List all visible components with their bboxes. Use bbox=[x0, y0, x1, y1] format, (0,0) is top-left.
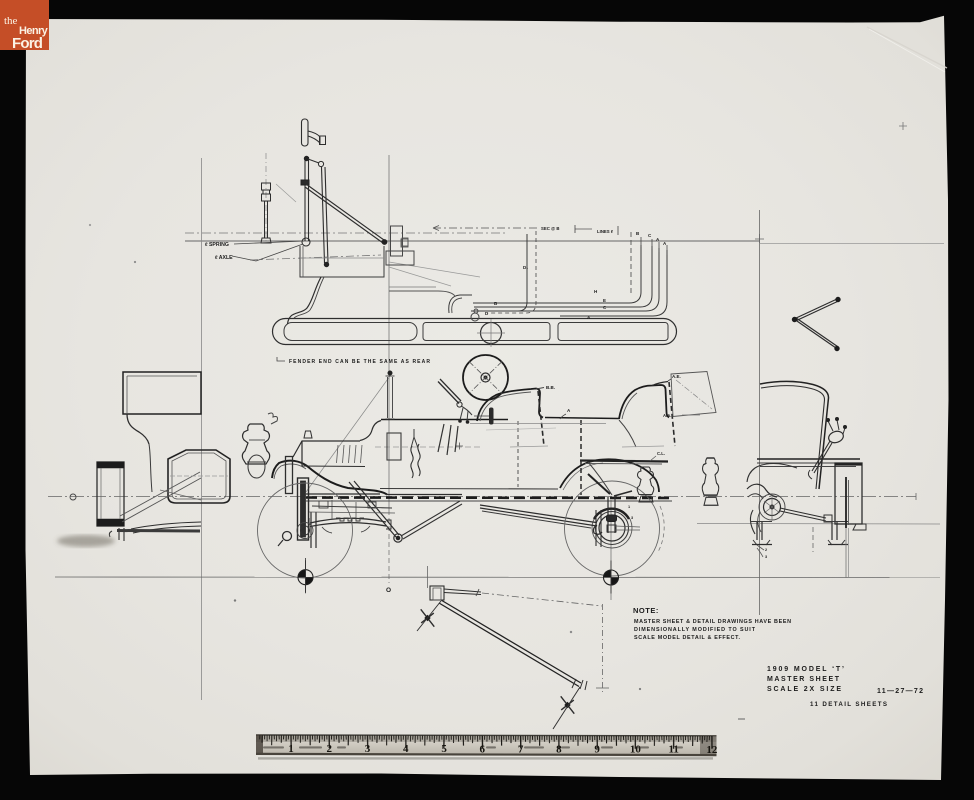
svg-text:D₁: D₁ bbox=[523, 265, 528, 270]
svg-text:FENDER END CAN BE THE SAME AS: FENDER END CAN BE THE SAME AS REAR bbox=[289, 359, 430, 365]
svg-text:E: E bbox=[603, 298, 606, 303]
svg-text:1: 1 bbox=[628, 505, 630, 509]
svg-text:H: H bbox=[594, 289, 597, 294]
svg-text:SEC @ B: SEC @ B bbox=[541, 226, 560, 231]
svg-text:LINES ℓ: LINES ℓ bbox=[597, 229, 613, 234]
svg-text:MASTER SHEET: MASTER SHEET bbox=[767, 676, 840, 683]
svg-text:ℓ AXLE: ℓ AXLE bbox=[214, 255, 233, 261]
svg-text:ℓ SPRING: ℓ SPRING bbox=[204, 242, 229, 248]
svg-text:MASTER SHEET & DETAIL DRAWINGS: MASTER SHEET & DETAIL DRAWINGS HAVE BEEN bbox=[634, 619, 791, 625]
svg-text:DIMENSIONALLY MODIFIED TO S: DIMENSIONALLY MODIFIED TO SUIT bbox=[634, 627, 756, 633]
svg-text:Ford: Ford bbox=[12, 35, 43, 52]
svg-text:3: 3 bbox=[631, 516, 633, 520]
svg-text:A.E.: A.E. bbox=[672, 374, 681, 379]
svg-text:3: 3 bbox=[765, 555, 767, 559]
svg-text:1909 MODEL ‘T’: 1909 MODEL ‘T’ bbox=[767, 666, 844, 673]
svg-text:11 DETAIL SHEETS: 11 DETAIL SHEETS bbox=[810, 701, 887, 708]
svg-text:B.B.: B.B. bbox=[546, 385, 555, 390]
svg-text:C.L.: C.L. bbox=[657, 451, 665, 456]
svg-text:the: the bbox=[4, 15, 18, 27]
svg-text:NOTE:: NOTE: bbox=[633, 606, 659, 615]
svg-text:SCALE MODEL DETAIL & EFFECT.: SCALE MODEL DETAIL & EFFECT. bbox=[634, 635, 741, 641]
svg-text:O: O bbox=[386, 587, 391, 594]
svg-text:A/A.: A/A. bbox=[663, 413, 671, 418]
svg-text:11—27—72: 11—27—72 bbox=[877, 688, 923, 695]
svg-text:SCALE 2X SIZE: SCALE 2X SIZE bbox=[767, 686, 841, 693]
svg-text:2: 2 bbox=[765, 548, 767, 552]
